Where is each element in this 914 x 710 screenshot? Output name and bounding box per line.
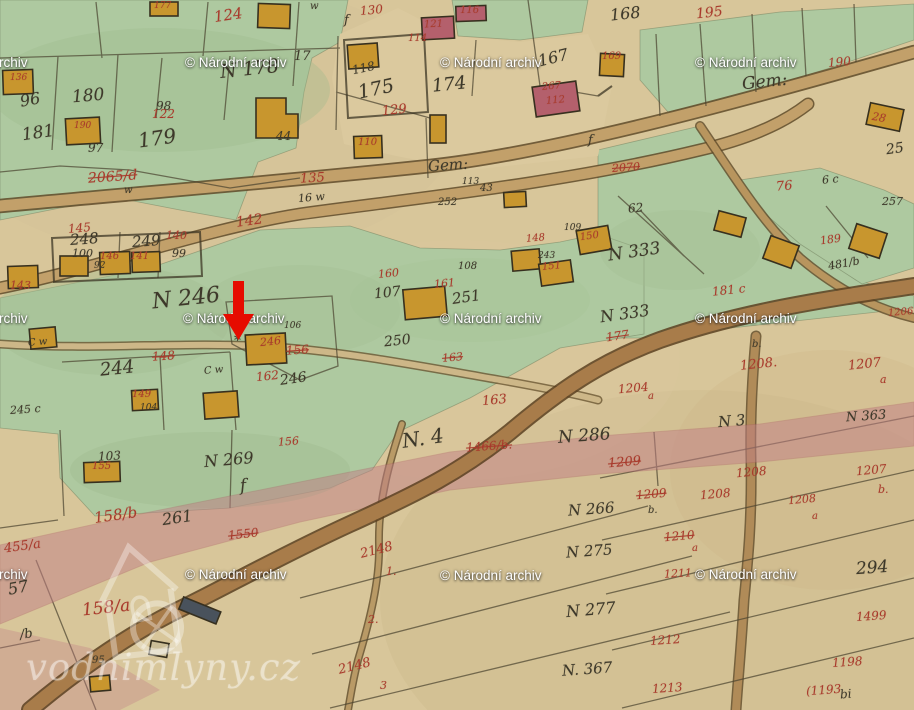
parcel-label-black: 44 [276, 130, 291, 142]
parcel-label-red: 110 [358, 138, 377, 148]
parcel-label-black: 244 [99, 358, 135, 379]
parcel-label-black: 180 [71, 87, 105, 107]
archive-watermark: © Národní archiv [183, 311, 285, 326]
parcel-label-red: 163 [481, 393, 507, 408]
parcel-label-red: 151 [542, 261, 562, 273]
parcel-label-black: 175 [356, 76, 395, 102]
parcel-label-black: Gem: [741, 72, 788, 94]
parcel-label-red: 136 [10, 74, 27, 83]
parcel-label-red: 148 [526, 233, 546, 245]
parcel-label-black: N 275 [566, 542, 613, 560]
parcel-label-red: 1208. [739, 356, 777, 373]
parcel-label-black: 249 [132, 233, 162, 250]
parcel-label-black: f [239, 478, 247, 495]
parcel-label-red: 2148 [337, 656, 372, 677]
parcel-label-black: 106 [284, 322, 301, 331]
parcel-label-red: 76 [775, 179, 793, 193]
parcel-label-red: a [648, 392, 654, 402]
parcel-label-black: 174 [431, 74, 467, 95]
parcel-label-red: 267 [542, 81, 562, 93]
parcel-label-black: 43 [480, 184, 493, 194]
parcel-label-red: 1209 [636, 487, 667, 502]
parcel-label-red: a [812, 512, 818, 522]
parcel-label-black: 245 c [10, 403, 41, 416]
parcel-label-red: 1207 [856, 463, 887, 478]
archive-watermark: © Národní archiv [695, 567, 797, 582]
parcel-label-black: 261 [161, 508, 193, 528]
parcel-label-red: 143 [10, 280, 31, 291]
parcel-label-red: b. [878, 484, 889, 495]
parcel-label-black: 97 [88, 142, 103, 154]
parcel-label-black: /b [19, 627, 33, 642]
parcel-label-black: N 277 [565, 600, 616, 620]
parcel-label-black: 99 [172, 248, 186, 259]
parcel-label-black: N. 4 [401, 425, 445, 451]
parcel-label-red: 148 [152, 349, 176, 363]
archive-watermark: © Národní archiv [185, 567, 287, 582]
parcel-label-red: 1499 [856, 609, 887, 623]
parcel-label-red: 1208 [700, 487, 731, 502]
parcel-label-black: N 3 [717, 413, 746, 430]
parcel-label-black: N 266 [568, 500, 615, 518]
parcel-label-black: 252 [438, 198, 457, 208]
parcel-label-black: 257 [882, 196, 903, 207]
parcel-label-red: 1208 [736, 465, 767, 480]
archive-watermark: © Národní archiv [440, 55, 542, 70]
parcel-label-red: 1198 [832, 655, 863, 669]
parcel-label-black: f [588, 134, 593, 147]
parcel-label-red: 28 [871, 111, 887, 124]
parcel-label-red: 1204 [618, 381, 649, 396]
parcel-label-black: 108 [458, 262, 477, 272]
parcel-label-black: 100 [72, 248, 93, 259]
parcel-label-black: C w [204, 365, 224, 377]
parcel-label-red: 158/a [81, 598, 131, 620]
parcel-label-black: 181 [21, 123, 56, 144]
parcel-label-red: 246 [259, 335, 281, 348]
parcel-label-red: 1209 [607, 455, 641, 471]
parcel-label-red: 1. [386, 566, 397, 577]
parcel-label-red: 149 [132, 390, 151, 400]
parcel-label-black: 251 [451, 288, 481, 307]
parcel-label-red: 112 [546, 95, 566, 107]
parcel-label-red: 129 [381, 103, 407, 119]
parcel-label-red: 146 [100, 252, 119, 262]
archive-watermark: © Národní archiv [695, 55, 797, 70]
archive-watermark: © Národní archiv [695, 311, 797, 326]
parcel-label-black: 250 [383, 333, 411, 350]
parcel-label-black: N. 367 [562, 660, 613, 678]
parcel-label-red: 162 [255, 369, 279, 383]
parcel-label-black: 243 [538, 252, 555, 261]
parcel-label-red: 1210 [664, 529, 695, 544]
parcel-label-red: 455/a [3, 537, 41, 555]
parcel-label-red: (1193 [806, 683, 842, 697]
parcel-label-red: 169 [602, 52, 621, 62]
archive-watermark: © Národní archiv [0, 567, 28, 582]
archive-watermark: © Národní archiv [0, 55, 28, 70]
parcel-label-red: 3 [380, 680, 387, 691]
parcel-label-red: 1213 [652, 681, 683, 695]
parcel-label-red: 140 [166, 230, 187, 241]
parcel-label-red: 161 [434, 277, 456, 290]
parcel-label-black: 62 [628, 201, 644, 214]
parcel-label-black: 107 [373, 285, 401, 302]
parcel-label-red: 155 [92, 462, 111, 472]
parcel-label-black: 96 [19, 90, 42, 109]
parcel-label-red: 195 [695, 5, 723, 22]
parcel-label-black: Gem: [428, 157, 469, 175]
parcel-label-red: 1466/b. [466, 438, 513, 453]
map-labels-layer: 961801819798179N 1781744118175174167168G… [0, 0, 914, 710]
parcel-label-red: 190 [74, 122, 91, 131]
parcel-label-red: 1206 [888, 307, 914, 319]
parcel-label-black: * [234, 334, 241, 348]
parcel-label-black: b. [752, 340, 762, 350]
parcel-label-red: 135 [300, 171, 325, 185]
parcel-label-black: N 246 [151, 284, 221, 313]
parcel-label-black: N 333 [599, 303, 650, 326]
parcel-label-black: w [310, 2, 319, 12]
parcel-label-red: 1208 [788, 493, 817, 506]
parcel-label-black: 16 w [298, 191, 326, 204]
parcel-label-black: N 363 [846, 409, 887, 425]
parcel-label-red: 1212 [650, 633, 681, 647]
parcel-label-black: 104 [140, 404, 157, 413]
parcel-label-red: a [880, 374, 887, 385]
parcel-label-red: 158/b [93, 505, 138, 526]
parcel-label-red: 177 [154, 2, 171, 11]
parcel-label-black: C w [28, 337, 48, 349]
parcel-label-red: 2. [368, 614, 379, 625]
parcel-label-black: 168 [609, 4, 641, 23]
parcel-label-black: 294 [855, 559, 889, 578]
parcel-label-red: 2065/d [88, 168, 138, 185]
parcel-label-red: 116 [460, 6, 479, 16]
parcel-label-black: 113 [462, 178, 479, 187]
parcel-label-red: 124 [213, 6, 243, 25]
parcel-label-black: 6 c [822, 173, 840, 185]
archive-watermark: © Národní archiv [440, 568, 542, 583]
parcel-label-red: 190 [828, 55, 852, 69]
parcel-label-red: 2148 [359, 540, 394, 561]
parcel-label-red: 163 [442, 351, 464, 364]
parcel-label-black: f [344, 14, 349, 27]
parcel-label-red: 114 [408, 34, 427, 44]
parcel-label-red: 142 [235, 212, 263, 230]
parcel-label-red: 2070 [612, 161, 641, 174]
archive-watermark: © Národní archiv [440, 311, 542, 326]
archive-watermark: © Národní archiv [0, 311, 28, 326]
parcel-label-black: 17 [294, 50, 311, 63]
parcel-label-red: 177 [605, 328, 629, 343]
parcel-label-red: 150 [579, 231, 599, 244]
parcel-label-black: 25 [885, 141, 905, 157]
parcel-label-black: b. [648, 506, 658, 516]
parcel-label-black: 92 [94, 262, 105, 271]
parcel-label-red: 145 [68, 221, 92, 235]
site-watermark: vodnimlyny.cz [26, 646, 301, 689]
parcel-label-red: 141 [130, 252, 149, 262]
parcel-label-red: 189 [819, 233, 841, 247]
parcel-label-black: 179 [137, 125, 178, 150]
parcel-label-red: 160 [378, 267, 400, 280]
parcel-label-red: 130 [360, 3, 384, 17]
parcel-label-red: a [692, 544, 698, 554]
cadastral-map-viewport[interactable]: 961801819798179N 1781744118175174167168G… [0, 0, 914, 710]
parcel-label-red: 121 [424, 20, 444, 31]
parcel-label-red: 122 [152, 108, 175, 120]
parcel-label-red: 181 c [711, 282, 746, 297]
parcel-label-red: 1211 [664, 567, 693, 579]
parcel-label-black: 481/b [827, 255, 860, 271]
archive-watermark: © Národní archiv [185, 55, 287, 70]
parcel-label-black: N 333 [607, 240, 662, 264]
parcel-label-black: 246 [279, 370, 307, 388]
parcel-label-black: w [124, 186, 133, 196]
parcel-label-black: N 286 [557, 426, 611, 447]
parcel-label-red: 156 [286, 343, 310, 357]
parcel-label-red: 1550 [227, 526, 259, 541]
parcel-label-black: N 269 [203, 450, 254, 470]
parcel-label-red: 156 [278, 435, 300, 447]
parcel-label-black: 118 [351, 60, 376, 77]
parcel-label-red: 1207 [847, 356, 881, 372]
